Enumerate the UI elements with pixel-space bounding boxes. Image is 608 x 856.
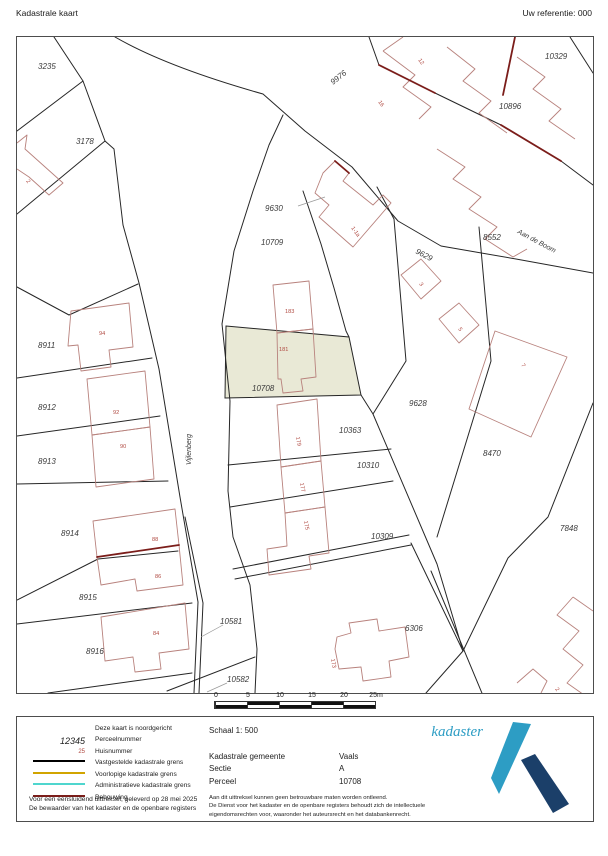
- detail-row: Kadastrale gemeenteVaals: [209, 751, 361, 763]
- parcel-label: 3178: [76, 137, 94, 146]
- house-number: 5: [456, 327, 463, 333]
- detail-row: Perceel10708: [209, 776, 361, 788]
- parcel-label: 10310: [357, 461, 380, 470]
- scale-segment: [311, 705, 343, 708]
- house-number: 94: [99, 331, 105, 337]
- house-number: 84: [153, 631, 159, 637]
- parcel-label: 8912: [38, 403, 56, 412]
- scale-tick: 20: [340, 692, 348, 699]
- house-number: 92: [113, 410, 119, 416]
- parcel-label: 10709: [261, 238, 284, 247]
- street-label: Vijlenberg: [186, 434, 193, 465]
- house-number: 2: [24, 179, 31, 185]
- house-number: 1-1a: [349, 226, 361, 239]
- parcel-label: 10708: [252, 384, 275, 393]
- scale-bar: 0510152025m: [214, 692, 384, 709]
- house-number: 3: [417, 282, 424, 288]
- legend-symbol: 12345: [29, 736, 85, 746]
- house-number: 16: [376, 100, 384, 109]
- scale-tick: 0: [214, 692, 218, 699]
- disclaimer-line: eigendomsrechten voor, waaronder het aut…: [209, 811, 425, 819]
- parcel-label: 9976: [329, 68, 349, 86]
- detail-label: Kadastrale gemeente: [209, 751, 339, 763]
- parcel-label: 10896: [499, 102, 522, 111]
- highlighted-parcel-10708: [225, 326, 361, 398]
- parcel-label: 7848: [560, 524, 578, 533]
- legend-label: Huisnummer: [95, 748, 132, 755]
- legend-label: Vastgestelde kadastrale grens: [95, 759, 183, 766]
- house-number: 177: [298, 482, 306, 492]
- disclaimer-line: De Dienst voor het kadaster en de openba…: [209, 802, 425, 810]
- detail-label: Perceel: [209, 776, 339, 788]
- scale-segment: [215, 705, 247, 708]
- scale-tick: 15: [308, 692, 316, 699]
- kadaster-logo-icon: [483, 722, 575, 817]
- scale-label: Schaal 1: 500: [209, 726, 258, 735]
- disclaimer: Aan dit uittreksel kunnen geen betrouwba…: [209, 794, 425, 819]
- house-number: 90: [120, 444, 126, 450]
- house-number: 7: [519, 363, 526, 369]
- parcel-label: 8914: [61, 529, 79, 538]
- kadaster-logo: kadaster: [429, 722, 579, 817]
- parcel-label: 10363: [339, 426, 362, 435]
- parcel-label: 10309: [371, 532, 394, 541]
- house-number: 2: [553, 687, 560, 693]
- scale-tick: 25m: [369, 692, 383, 699]
- parcel-label: 3235: [38, 62, 56, 71]
- reference-label: Uw referentie: 000: [523, 8, 592, 18]
- house-number: 181: [279, 347, 288, 353]
- scale-tick: 10: [276, 692, 284, 699]
- legend-symbol: 25: [29, 748, 85, 755]
- disclaimer-line: Aan dit uittreksel kunnen geen betrouwba…: [209, 794, 425, 802]
- parcel-label: 9629: [414, 247, 434, 264]
- scale-bar-graphic: [214, 701, 376, 709]
- house-number: 173: [329, 658, 337, 668]
- map-canvas: 3235317899761032910896855296301070996299…: [17, 37, 593, 693]
- detail-row: SectieA: [209, 763, 361, 775]
- page-title: Kadastrale kaart: [16, 8, 78, 18]
- legend-symbol: [29, 782, 85, 789]
- legend-label: Deze kaart is noordgericht: [95, 725, 172, 732]
- parcel-details: Kadastrale gemeenteVaalsSectieAPerceel10…: [209, 751, 361, 788]
- scale-segment: [279, 705, 311, 708]
- detail-label: Sectie: [209, 763, 339, 775]
- parcel-label: 8552: [483, 233, 501, 242]
- detail-value: 10708: [339, 776, 361, 788]
- scale-bar-ticks: 0510152025m: [214, 692, 384, 700]
- parcel-label: 8916: [86, 647, 104, 656]
- house-number: 179: [294, 436, 302, 446]
- street-label: Aan de Boom: [515, 228, 557, 255]
- parcel-label: 10329: [545, 52, 568, 61]
- parcel-label: 8913: [38, 457, 56, 466]
- scale-segment: [343, 705, 375, 708]
- house-number: 86: [155, 574, 161, 580]
- house-number: 88: [152, 537, 158, 543]
- parcel-label: 6306: [405, 624, 423, 633]
- parcel-label: 8911: [38, 341, 55, 350]
- scale-segment: [247, 705, 279, 708]
- house-number: 183: [285, 309, 294, 315]
- parcel-label: 10582: [227, 675, 250, 684]
- issuance-line: Voor een eensluidend uittreksel, gelever…: [29, 795, 197, 805]
- legend-symbol: [29, 759, 85, 766]
- issuance-line: De bewaarder van het kadaster en de open…: [29, 804, 197, 814]
- parcel-label: 9628: [409, 399, 427, 408]
- house-number: 175: [302, 520, 310, 530]
- detail-value: Vaals: [339, 751, 358, 763]
- cadastral-map: 3235317899761032910896855296301070996299…: [16, 36, 594, 694]
- parcel-label: 8915: [79, 593, 97, 602]
- parcel-label: 10581: [220, 617, 242, 626]
- issuance-note: Voor een eensluidend uittreksel, gelever…: [29, 795, 197, 814]
- parcel-label: 8470: [483, 449, 501, 458]
- legend-label: Perceelnummer: [95, 736, 142, 743]
- detail-value: A: [339, 763, 344, 775]
- legend-symbol: [29, 771, 85, 778]
- kadaster-logo-text: kadaster: [431, 724, 483, 741]
- scale-tick: 5: [246, 692, 250, 699]
- house-number: 12: [416, 58, 424, 67]
- legend-label: Administratieve kadastrale grens: [95, 782, 191, 789]
- info-panel: Deze kaart is noordgericht12345Perceelnu…: [16, 716, 594, 822]
- legend-row: 12345Perceelnummer: [29, 736, 279, 747]
- parcel-label: 9630: [265, 204, 283, 213]
- legend-label: Voorlopige kadastrale grens: [95, 771, 177, 778]
